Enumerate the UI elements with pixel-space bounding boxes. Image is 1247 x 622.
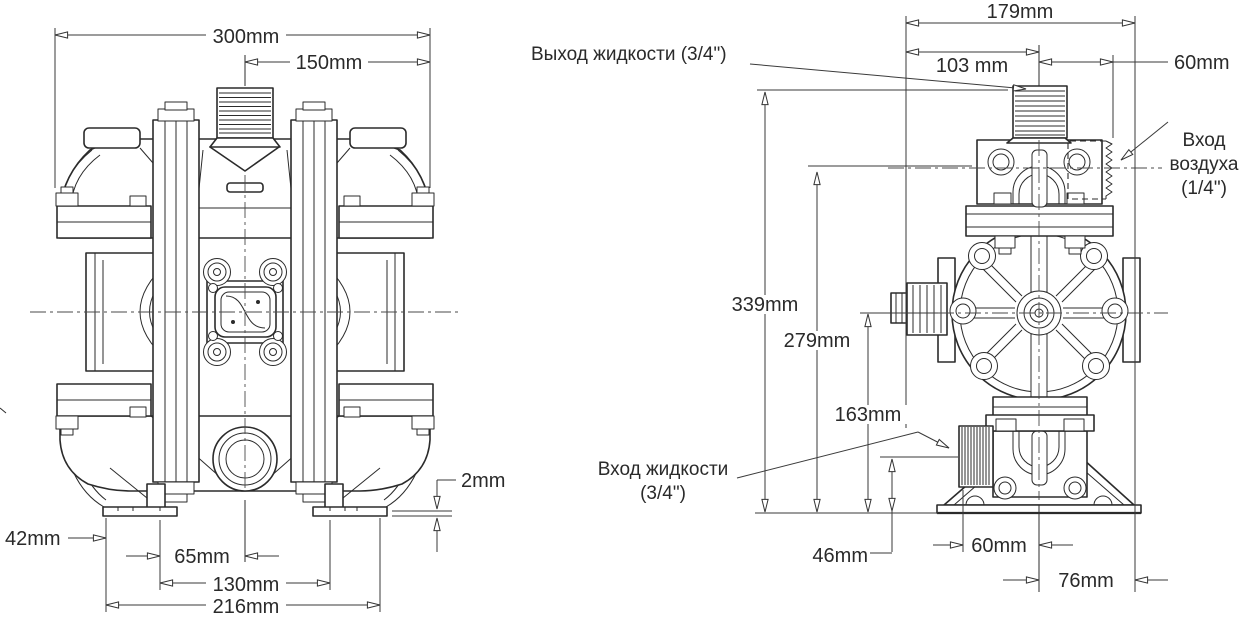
side-upper-manifold xyxy=(977,140,1102,207)
pump-dimension-drawing: 300mm 150mm 216mm 130mm 65mm 42mm xyxy=(0,0,1247,622)
air-inlet-text-2: воздуха xyxy=(1170,154,1239,175)
dim-foot-to-center-label: 65mm xyxy=(174,546,230,568)
dim-foot-inner-span: 130mm xyxy=(160,574,330,596)
dim-overall-width: 300mm xyxy=(55,26,430,48)
dim-center-to-edge: 150mm xyxy=(245,52,430,74)
dim-overall-height-label: 339mm xyxy=(732,294,799,316)
side-lower-manifold xyxy=(993,431,1087,499)
dim-overall-width-label: 300mm xyxy=(213,26,280,48)
side-outlet-port xyxy=(1007,86,1071,143)
dim-center-to-edge-label: 150mm xyxy=(296,52,363,74)
dim-foot-outer-span: 216mm xyxy=(106,596,380,618)
dim-overall-height: 339mm xyxy=(724,92,806,512)
dim-center-to-air-inlet-label: 60mm xyxy=(1174,52,1230,74)
dim-edge-to-foot: 42mm xyxy=(5,528,106,550)
dim-outlet-offset-label: 103 mm xyxy=(936,55,1008,77)
dim-center-to-air-inlet: 60mm xyxy=(1039,52,1230,74)
label-fluid-inlet: Вход жидкости (3/4") xyxy=(598,432,949,504)
air-inlet-text-3: (1/4") xyxy=(1181,178,1227,199)
side-fluid-inlet-port xyxy=(959,426,993,487)
dim-center-to-back-edge: 76mm xyxy=(1003,570,1168,592)
dim-fluid-inlet-height-label: 46mm xyxy=(812,545,868,567)
label-air-inlet: Вход воздуха (1/4") xyxy=(1121,122,1239,199)
dim-inlet-face-to-center-label: 60mm xyxy=(971,535,1027,557)
dim-air-inlet-height-label: 279mm xyxy=(784,330,851,352)
side-lower-clamp xyxy=(986,397,1094,431)
dim-foot-inner-span-label: 130mm xyxy=(213,574,280,596)
dim-edge-to-foot-label: 42mm xyxy=(5,528,61,550)
dim-overall-depth: 179mm xyxy=(906,1,1135,23)
fluid-inlet-text-2: (3/4") xyxy=(640,483,686,504)
dim-center-to-back-edge-label: 76mm xyxy=(1058,570,1114,592)
dim-plate-thickness-label: 2mm xyxy=(461,470,505,492)
fluid-inlet-text-1: Вход жидкости xyxy=(598,459,729,480)
dim-foot-outer-span-label: 216mm xyxy=(213,596,280,618)
dim-shaft-center-height-label: 163mm xyxy=(835,404,902,426)
dim-overall-depth-label: 179mm xyxy=(987,1,1054,23)
dim-foot-to-center: 65mm xyxy=(126,546,279,568)
dim-inlet-face-to-center: 60mm xyxy=(933,535,1073,557)
front-view xyxy=(0,55,458,562)
air-inlet-text-1: Вход xyxy=(1183,130,1226,151)
fluid-outlet-text: Выход жидкости (3/4") xyxy=(531,44,727,65)
side-view xyxy=(888,45,1168,592)
dim-plate-thickness: 2mm xyxy=(392,470,505,552)
dim-air-inlet-height: 279mm xyxy=(776,172,858,512)
side-muffler xyxy=(891,283,947,335)
drawing-canvas: 300mm 150mm 216mm 130mm 65mm 42mm xyxy=(0,0,1247,622)
dim-outlet-offset: 103 mm xyxy=(906,52,1039,77)
stray-tick xyxy=(0,408,6,413)
